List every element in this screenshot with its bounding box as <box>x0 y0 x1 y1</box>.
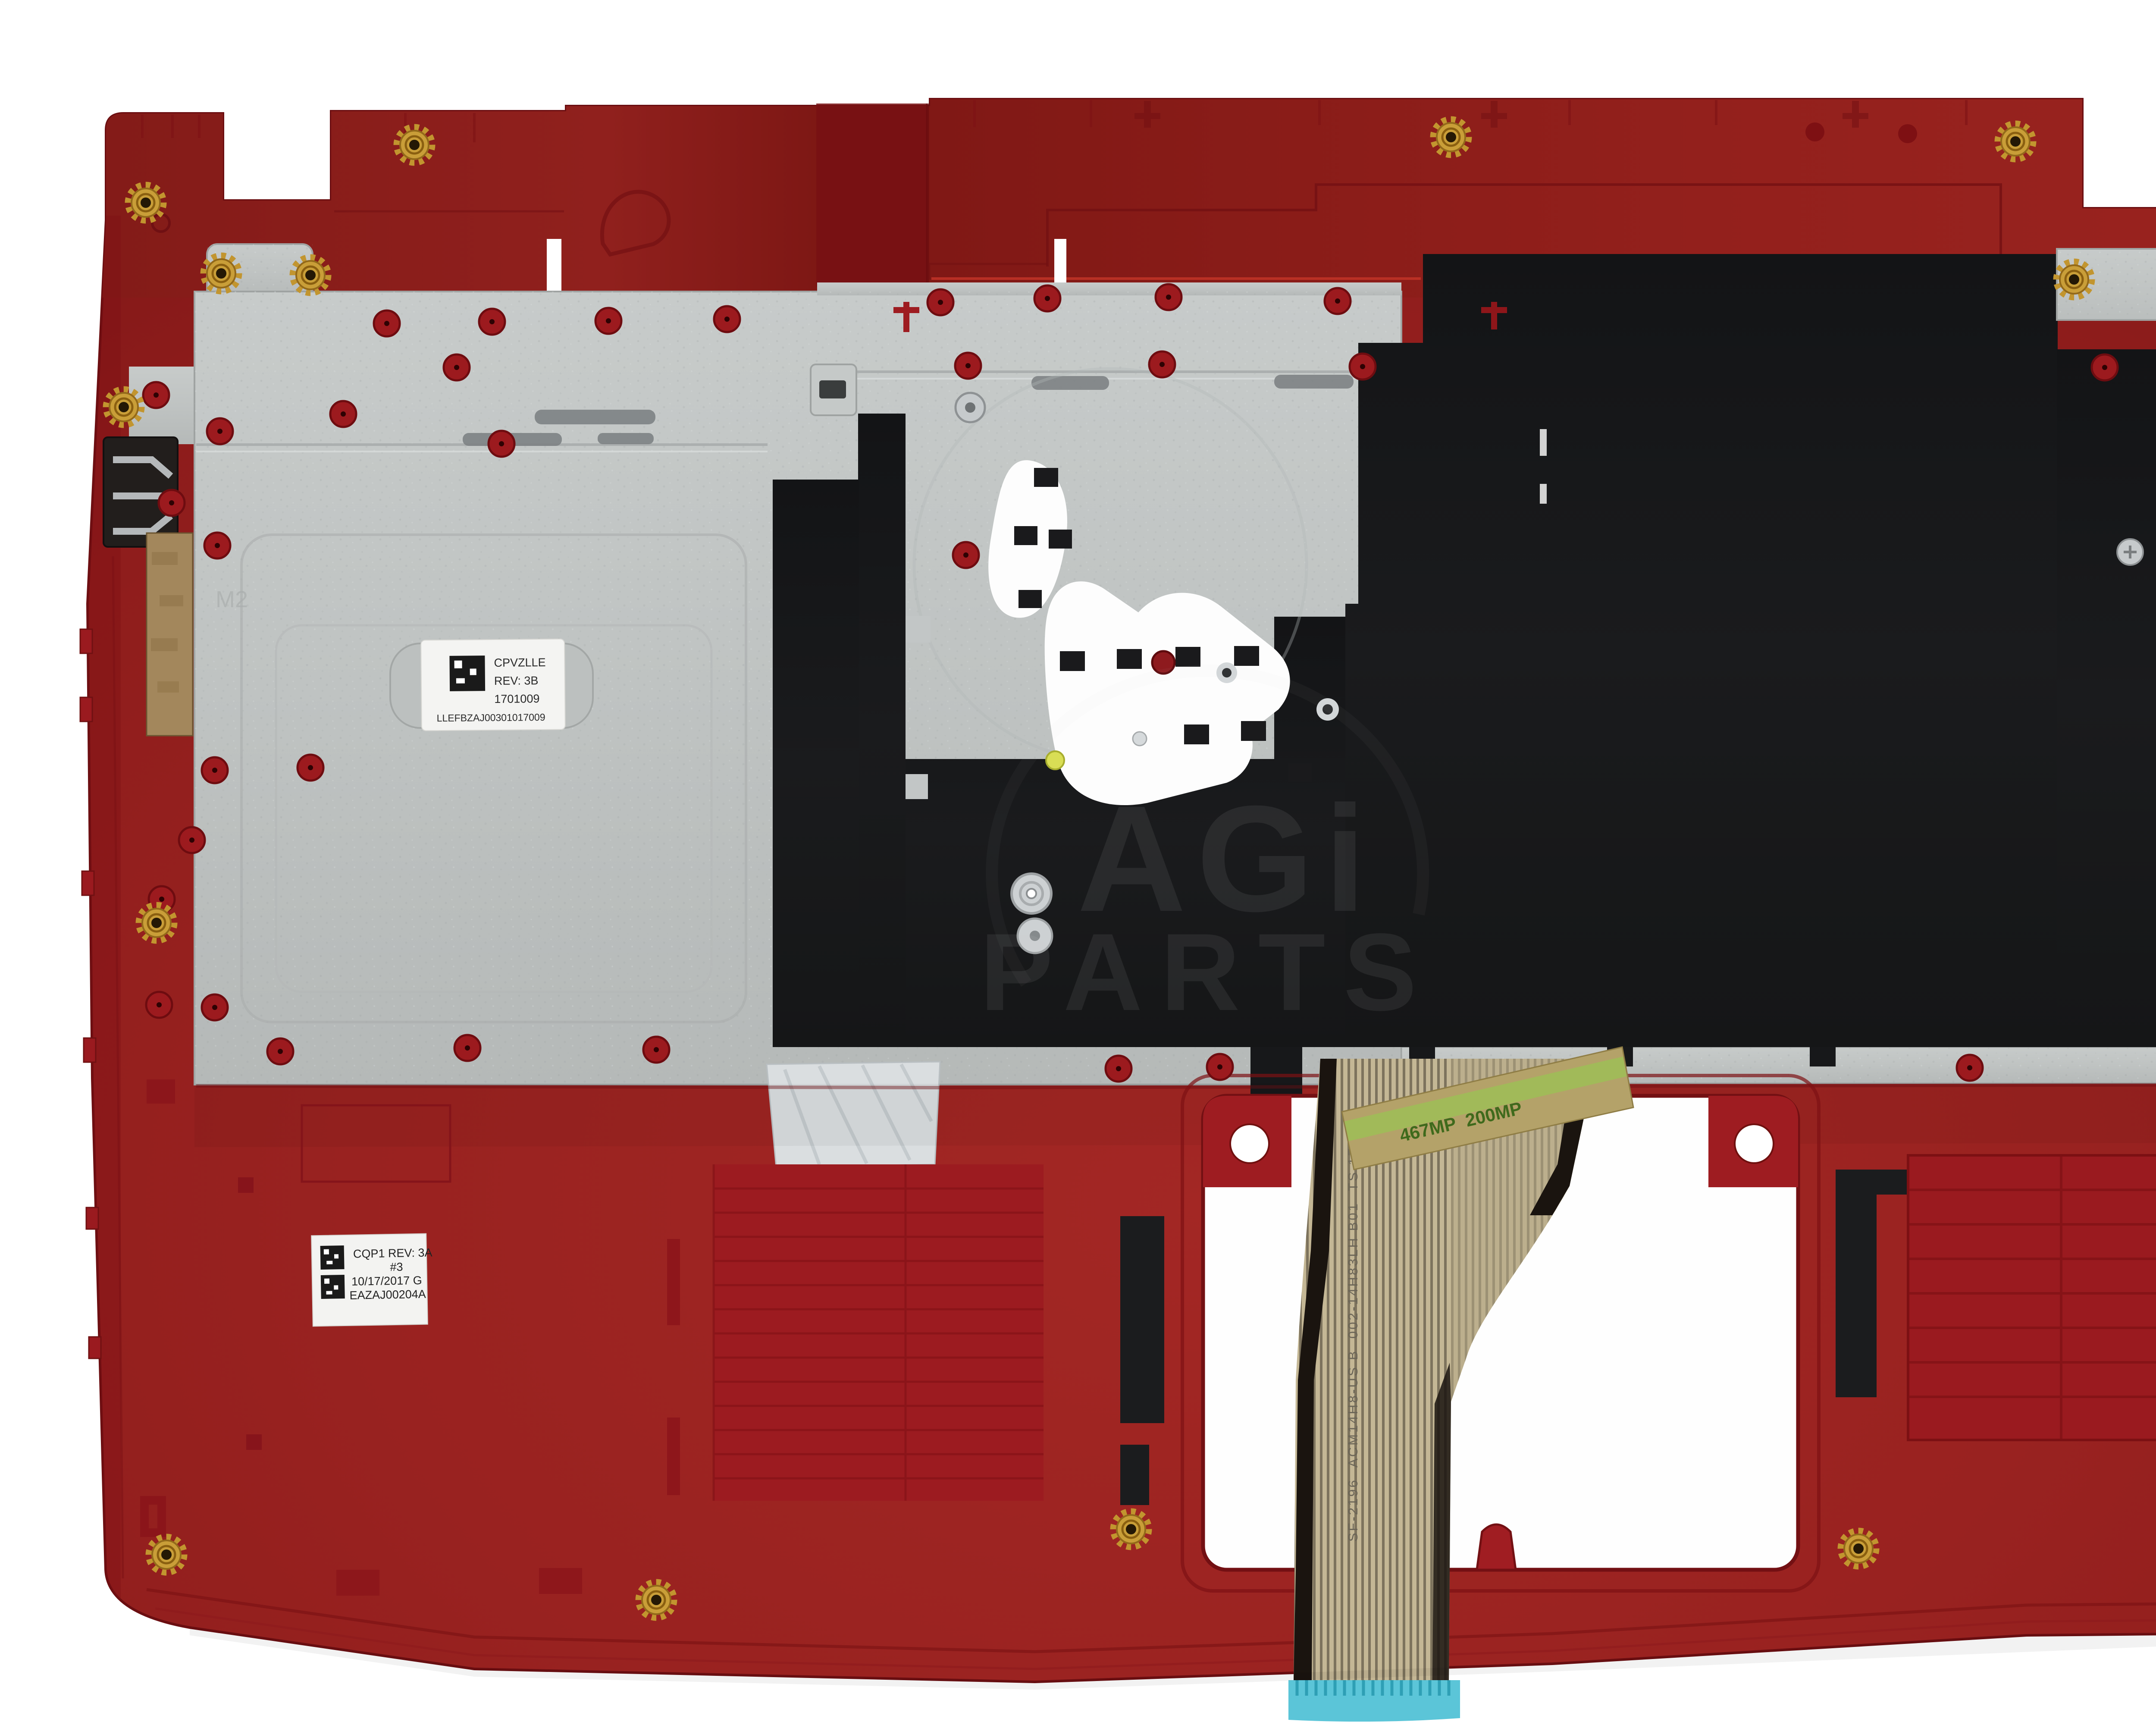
svg-text:EAZAJ00204A: EAZAJ00204A <box>349 1288 426 1302</box>
svg-text:1701009: 1701009 <box>494 692 539 706</box>
svg-text:REV: 3B: REV: 3B <box>494 674 539 687</box>
svg-text:#3: #3 <box>390 1261 403 1274</box>
svg-text:PARTS: PARTS <box>980 911 1435 1034</box>
svg-text:10/17/2017 G: 10/17/2017 G <box>351 1274 422 1288</box>
svg-text:LLEFBZAJ00301017009: LLEFBZAJ00301017009 <box>437 712 545 724</box>
svg-text:CQP1 REV: 3A: CQP1 REV: 3A <box>353 1246 432 1260</box>
svg-text:CPVZLLE: CPVZLLE <box>494 656 545 669</box>
svg-text:SF-2196 ACM14H8-US B 002-14H: SF-2196 ACM14H8-US B 002-14H83LH B01 TS … <box>1345 1110 1360 1542</box>
svg-text:M2: M2 <box>216 586 248 612</box>
